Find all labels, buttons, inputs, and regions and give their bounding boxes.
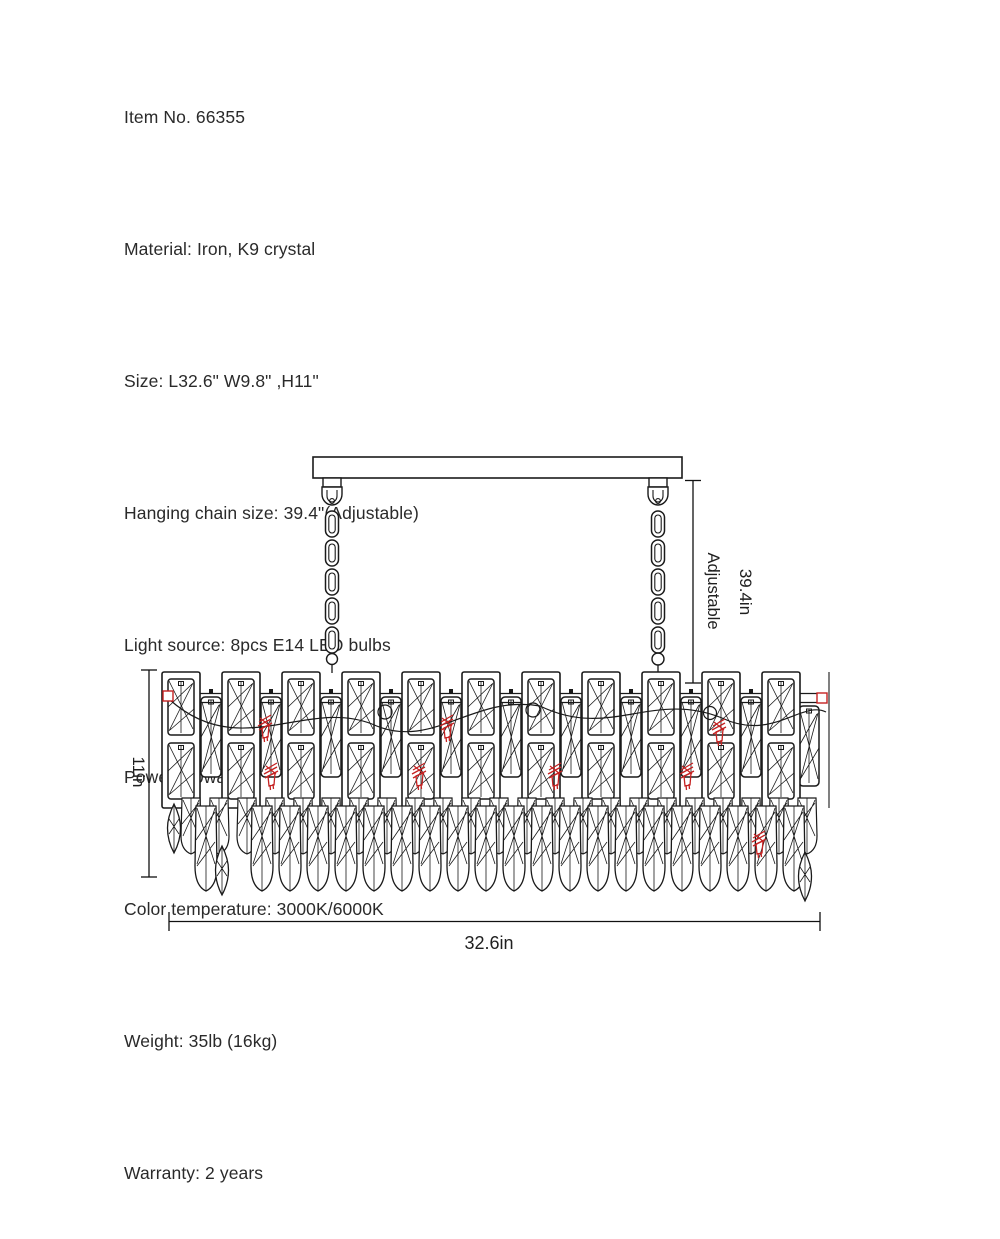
crystal-drop xyxy=(279,806,301,891)
crystal-drop xyxy=(755,806,777,891)
crystal-drop xyxy=(671,806,693,891)
rail-end-cap xyxy=(163,691,173,701)
crystal-column xyxy=(582,672,620,808)
crystal-column xyxy=(342,672,380,808)
crystal-plate xyxy=(741,697,761,777)
crystal-column xyxy=(642,672,680,808)
chain-note-label: Adjustable xyxy=(704,552,722,629)
fixture-height-label: 11in xyxy=(129,757,148,788)
chain-link xyxy=(652,540,665,566)
chain-link xyxy=(326,540,339,566)
crystal-drop-row xyxy=(168,798,818,901)
crystal-drop xyxy=(363,806,385,891)
chain-length-label: 39.4in xyxy=(736,569,755,615)
chandelier-diagram: Adjustable 39.4in 11in 32.6in xyxy=(0,0,1000,1000)
spec-weight: Weight: 35lb (16kg) xyxy=(124,1019,419,1063)
crystal-drop xyxy=(391,806,413,891)
crystal-drop xyxy=(168,804,181,853)
chain-link xyxy=(326,598,339,624)
chain-link xyxy=(652,627,665,653)
dimension-fixture-height: 11in xyxy=(129,670,157,877)
hanging-chain-right xyxy=(648,478,668,676)
hanging-chain-left xyxy=(322,478,342,673)
spec-warranty: Warranty: 2 years xyxy=(124,1151,419,1195)
crystal-drop xyxy=(335,806,357,891)
crystal-column xyxy=(282,672,320,808)
crystal-drop xyxy=(503,806,525,891)
chandelier-body xyxy=(162,672,829,808)
chain-link xyxy=(326,569,339,595)
chain-link xyxy=(652,598,665,624)
crystal-drop xyxy=(475,806,497,891)
chain-link xyxy=(326,511,339,537)
crystal-plate xyxy=(441,697,461,777)
crystal-drop xyxy=(587,806,609,891)
crystal-plate xyxy=(501,697,521,777)
chain-link xyxy=(652,511,665,537)
crystal-drop xyxy=(643,806,665,891)
chain-link xyxy=(652,569,665,595)
crystal-drop xyxy=(559,806,581,891)
crystal-drop xyxy=(419,806,441,891)
crystal-plate xyxy=(799,706,819,786)
ceiling-mount-bar xyxy=(313,457,682,478)
crystal-drop xyxy=(531,806,553,891)
crystal-plate xyxy=(621,697,641,777)
crystal-plate xyxy=(201,697,221,777)
rail-end-cap xyxy=(817,693,827,703)
crystal-drop xyxy=(307,806,329,891)
crystal-column xyxy=(462,672,500,808)
chain-connector xyxy=(322,478,342,505)
crystal-column xyxy=(222,672,260,808)
chain-connector xyxy=(648,478,668,505)
chain-link xyxy=(326,627,339,653)
crystal-drop xyxy=(727,806,749,891)
crystal-plate xyxy=(561,697,581,777)
dimension-chain-length: Adjustable 39.4in xyxy=(685,481,755,684)
fixture-length-label: 32.6in xyxy=(464,933,513,953)
crystal-drop xyxy=(447,806,469,891)
crystal-drop xyxy=(251,806,273,891)
dimension-fixture-length: 32.6in xyxy=(169,912,820,953)
crystal-plate xyxy=(321,697,341,777)
crystal-drop xyxy=(195,806,217,891)
crystal-column-row xyxy=(162,672,800,808)
crystal-drop xyxy=(699,806,721,891)
crystal-column xyxy=(762,672,800,808)
crystal-drop xyxy=(615,806,637,891)
